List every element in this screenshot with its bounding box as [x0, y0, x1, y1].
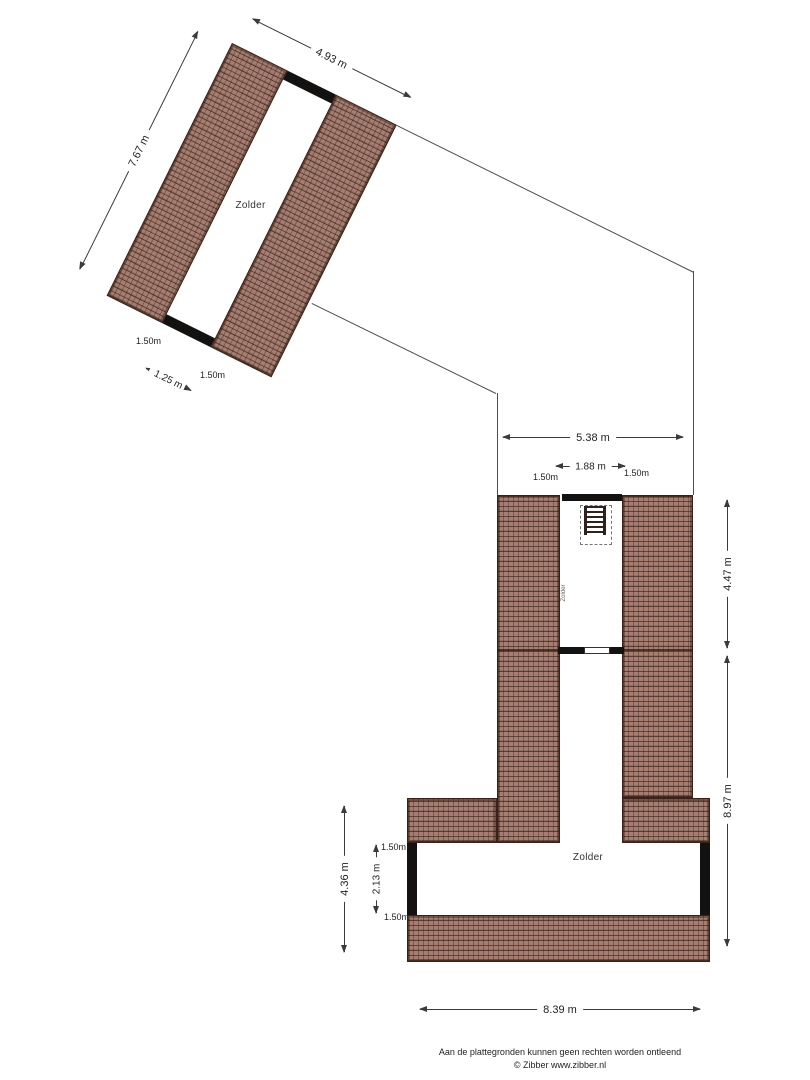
lower-dim-left-inner: 2.13 m: [376, 845, 377, 913]
outline-segment-upper-right: [397, 125, 694, 273]
lower-dim-corridor: 1.88 m: [556, 466, 625, 467]
lower-dim-ext-bottom-label: 1.50m: [384, 912, 409, 922]
upper-wall-top: [283, 71, 336, 104]
floorplan-canvas: Zolder 4.93 m 7.67 m 1.50m 1.25 m 1.50m …: [0, 0, 810, 1080]
upper-dim-side-label: 7.67 m: [124, 127, 155, 173]
outline-segment-left-vertical: [497, 393, 498, 495]
lower-dim-corridor-right-label: 1.50m: [624, 468, 649, 478]
lower-dim-left-inner-label: 2.13 m: [372, 858, 383, 901]
stairs-icon: [584, 506, 606, 535]
upper-room-label: Zolder: [224, 200, 278, 211]
outline-segment-lower-left: [312, 303, 497, 394]
corridor-label: Zolder: [561, 573, 567, 613]
lower-dim-corridor-label: 1.88 m: [569, 462, 612, 473]
footer-disclaimer: Aan de plattegronden kunnen geen rechten…: [310, 1046, 810, 1071]
lower-roof-slope-left: [497, 495, 560, 843]
lower-dim-left-outer-label: 4.36 m: [339, 856, 351, 902]
upper-dim-bottom-left-label: 1.50m: [136, 336, 161, 346]
lower-room-label: Zolder: [558, 852, 618, 863]
lower-window-mid: [584, 647, 610, 654]
lower-wall-corridor-top: [562, 494, 622, 501]
upper-dim-bottom-mid-label: 1.25 m: [147, 366, 190, 395]
lower-roof-slope-bottom: [407, 915, 710, 962]
footer-line1: Aan de plattegronden kunnen geen rechten…: [310, 1046, 810, 1059]
lower-wall-room-left: [407, 843, 417, 915]
lower-wall-mid-right: [610, 647, 624, 654]
upper-dim-bottom-mid: 1.25 m: [146, 368, 191, 391]
upper-dim-top-label: 4.93 m: [308, 43, 354, 74]
lower-dim-bottom-width-label: 8.39 m: [537, 1004, 583, 1016]
lower-dim-top-width: 5.38 m: [503, 437, 683, 438]
lower-wall-mid-left: [558, 647, 584, 654]
lower-roof-slope-right-wide: [622, 798, 710, 843]
lower-dim-right-upper: 4.47 m: [727, 500, 728, 648]
lower-wall-room-right: [700, 843, 710, 915]
footer-line2: © Zibber www.zibber.nl: [310, 1059, 810, 1072]
lower-dim-left-outer: 4.36 m: [344, 806, 345, 952]
upper-dim-bottom-right-label: 1.50m: [200, 370, 225, 380]
lower-dim-ext-top-label: 1.50m: [381, 842, 406, 852]
lower-roof-slope-extension-top: [407, 798, 497, 843]
lower-dim-right-upper-label: 4.47 m: [722, 551, 734, 597]
lower-dim-right-lower: 8.97 m: [727, 656, 728, 946]
upper-wall-bottom: [162, 314, 215, 347]
lower-roof-slope-right: [622, 495, 693, 798]
lower-dim-top-width-label: 5.38 m: [570, 432, 616, 444]
lower-dim-corridor-left-label: 1.50m: [533, 472, 558, 482]
lower-dim-right-lower-label: 8.97 m: [722, 778, 734, 824]
outline-segment-right-vertical: [693, 271, 694, 495]
lower-dim-bottom-width: 8.39 m: [420, 1009, 700, 1010]
upper-wing: Zolder 4.93 m 7.67 m: [107, 43, 397, 377]
